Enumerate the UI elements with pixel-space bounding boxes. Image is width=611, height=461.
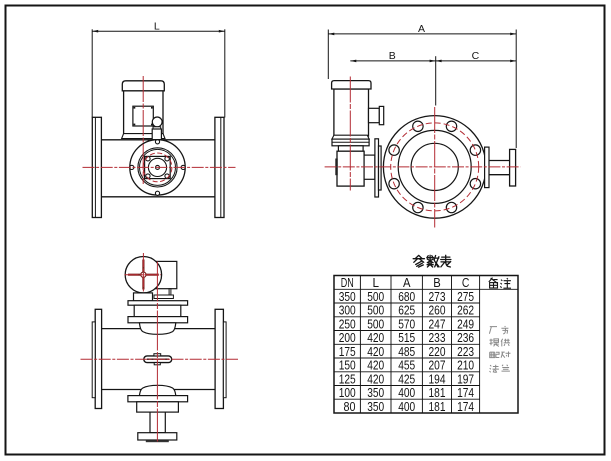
svg-text:207: 207 bbox=[429, 358, 446, 373]
svg-text:L: L bbox=[372, 275, 379, 290]
svg-text:150: 150 bbox=[339, 358, 356, 373]
svg-text:247: 247 bbox=[429, 316, 446, 331]
svg-text:350: 350 bbox=[367, 385, 384, 400]
svg-text:A: A bbox=[418, 23, 425, 35]
svg-text:181: 181 bbox=[429, 399, 446, 414]
svg-text:249: 249 bbox=[457, 316, 474, 331]
svg-text:181: 181 bbox=[429, 385, 446, 400]
svg-text:400: 400 bbox=[398, 399, 415, 414]
svg-text:500: 500 bbox=[367, 316, 384, 331]
svg-text:B: B bbox=[389, 50, 396, 62]
svg-text:L: L bbox=[154, 20, 160, 32]
svg-text:570: 570 bbox=[398, 316, 415, 331]
svg-text:174: 174 bbox=[457, 385, 474, 400]
svg-text:400: 400 bbox=[398, 385, 415, 400]
svg-text:C: C bbox=[462, 275, 470, 290]
svg-text:DN: DN bbox=[341, 275, 354, 290]
svg-text:A: A bbox=[403, 275, 411, 290]
svg-text:C: C bbox=[472, 50, 480, 62]
svg-text:B: B bbox=[433, 275, 441, 290]
svg-text:174: 174 bbox=[457, 399, 474, 414]
svg-text:80: 80 bbox=[344, 399, 356, 414]
svg-text:455: 455 bbox=[398, 358, 415, 373]
svg-text:350: 350 bbox=[367, 399, 384, 414]
svg-text:210: 210 bbox=[457, 358, 474, 373]
svg-text:250: 250 bbox=[339, 316, 356, 331]
svg-text:100: 100 bbox=[339, 385, 356, 400]
svg-text:420: 420 bbox=[367, 358, 384, 373]
